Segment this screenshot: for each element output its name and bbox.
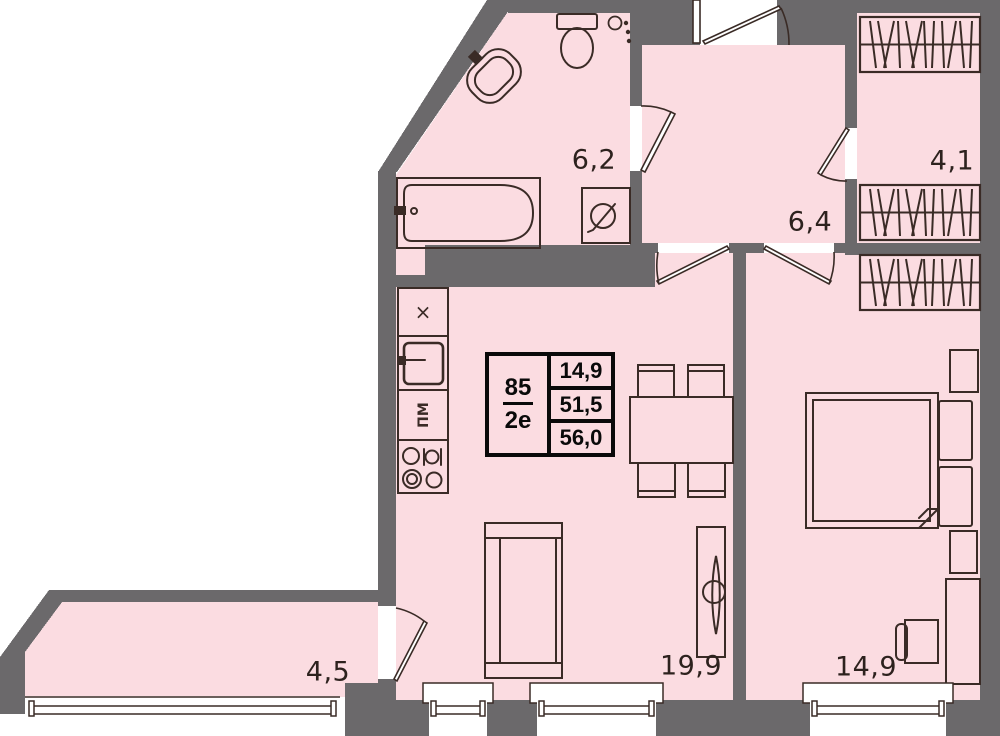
apartment-plan-type: 2е	[505, 409, 532, 433]
apartment-area-top: 14,9	[551, 356, 611, 386]
wall-wardrobe-bottom	[845, 243, 980, 255]
apartment-area-bottom: 56,0	[551, 423, 611, 453]
bedroom-floor	[746, 253, 980, 700]
hallway-area-label: 6,4	[788, 207, 832, 238]
bedroom-window	[810, 700, 946, 736]
kitchen-living-area-label: 19,9	[660, 651, 722, 682]
dishwasher-label: ПМ	[416, 402, 432, 428]
wall-hall-top-left	[642, 0, 700, 45]
wall-bathroom-top	[508, 0, 642, 13]
balcony-door-opening	[378, 606, 396, 679]
wall-bathroom-bottom	[396, 245, 655, 287]
wall-niche	[396, 245, 425, 275]
wall-balcony-top	[55, 590, 378, 602]
bathroom-door-opening	[630, 106, 642, 171]
wardrobe-area-label: 4,1	[930, 146, 974, 177]
floor-plan: × ПМ	[0, 0, 1000, 736]
apartment-info-card: 85 2е 14,9 51,5 56,0	[485, 352, 615, 457]
wall-living-bedroom-divider	[733, 253, 746, 700]
bathroom-area-label: 6,2	[572, 145, 616, 176]
wall-wardrobe-top	[857, 0, 980, 13]
living-window-small	[429, 700, 487, 736]
apartment-area-middle: 51,5	[551, 386, 611, 424]
bathroom-floor	[396, 13, 630, 245]
hood-symbol: ×	[415, 300, 432, 324]
balcony-area-label: 4,5	[306, 657, 350, 688]
kitchen-living-passage	[655, 253, 733, 287]
balcony-window	[25, 696, 340, 736]
wardrobe-door-opening	[845, 128, 857, 179]
entrance-door	[693, 0, 789, 45]
wall-balcony-pillar	[345, 683, 396, 703]
bedroom-area-label: 14,9	[835, 652, 897, 683]
wall-right-outer	[980, 0, 1000, 736]
living-window-large	[537, 700, 656, 736]
apartment-number: 85	[503, 376, 534, 405]
apartment-areas: 14,9 51,5 56,0	[551, 356, 611, 453]
apartment-id-cell: 85 2е	[489, 356, 551, 453]
